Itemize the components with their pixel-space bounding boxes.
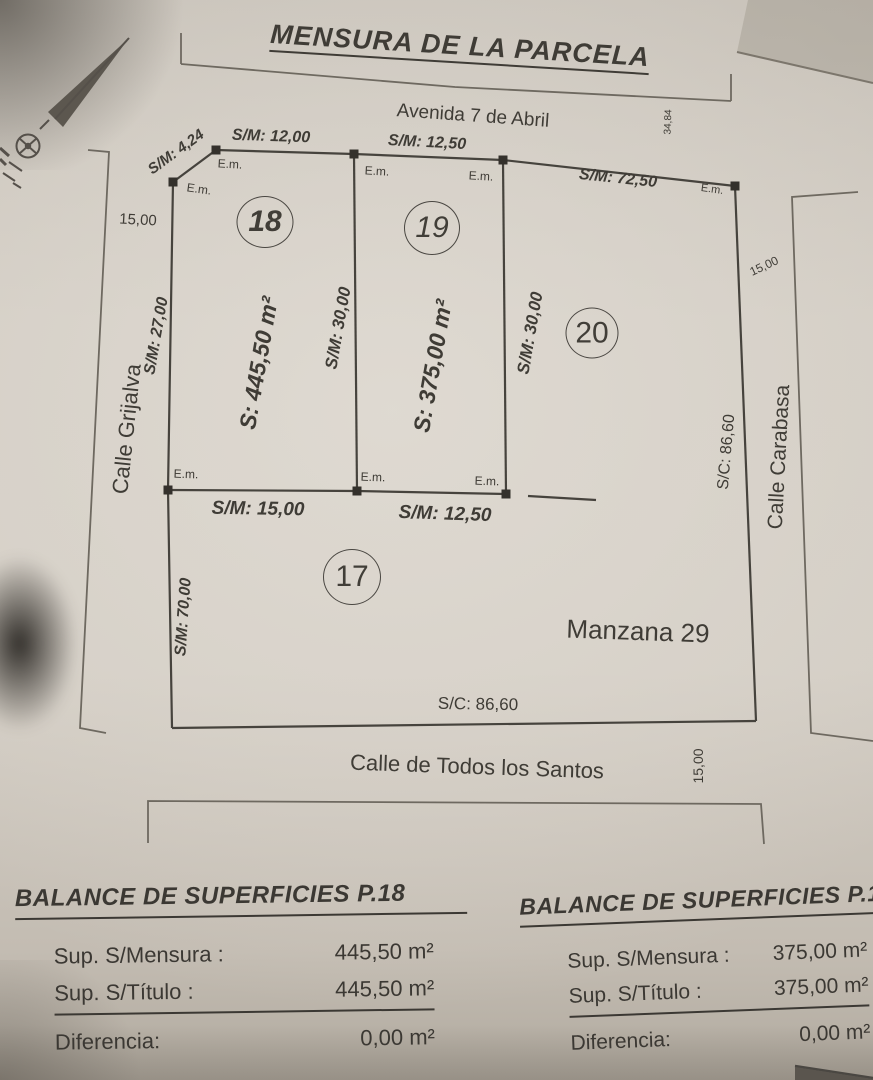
paper-edge-shade — [737, 0, 873, 83]
parcel-number-20: 20 — [575, 316, 608, 350]
row-value: 445,50 m² — [335, 975, 434, 1002]
table-row: Diferencia: 0,00 m² — [570, 1020, 871, 1055]
block-label: Manzana 29 — [566, 616, 710, 647]
em-marker: E.m. — [173, 468, 198, 481]
parcel-circle-20: 20 — [566, 308, 619, 359]
street-width-south: 15,00 — [691, 748, 705, 783]
table-row: Sup. S/Mensura : 445,50 m² — [54, 938, 434, 969]
em-marker: E.m. — [364, 164, 389, 177]
table-row: Diferencia: 0,00 m² — [55, 1024, 435, 1055]
measure-depth-right: 34,84 — [664, 109, 675, 134]
street-width-west: 15,00 — [119, 212, 157, 229]
measure-block-south: S/C: 86,60 — [438, 695, 519, 713]
row-value: 0,00 m² — [360, 1024, 435, 1051]
em-marker: E.m. — [360, 471, 385, 484]
em-marker: E.m. — [474, 475, 499, 488]
row-value: 445,50 m² — [334, 938, 433, 965]
row-label: Diferencia: — [570, 1028, 671, 1056]
measure-back-p18: S/M: 15,00 — [211, 499, 304, 520]
parcel-circle-18: 18 — [237, 196, 294, 248]
em-marker: E.m. — [186, 181, 212, 196]
measure-front-p18: S/M: 12,00 — [232, 128, 311, 147]
parcel-number-19: 19 — [415, 211, 448, 245]
row-value: 375,00 m² — [774, 973, 869, 1001]
row-label: Diferencia: — [55, 1028, 161, 1055]
north-arrow-icon — [0, 38, 129, 188]
balance-table-p19: BALANCE DE SUPERFICIES P.19 Sup. S/Mensu… — [519, 878, 873, 1068]
row-value: 375,00 m² — [772, 938, 867, 966]
row-label: Sup. S/Mensura : — [54, 941, 224, 969]
em-marker: E.m. — [217, 157, 242, 170]
parcel-circle-19: 19 — [404, 201, 460, 255]
balance-table-p18: BALANCE DE SUPERFICIES P.18 Sup. S/Mensu… — [15, 879, 469, 1067]
measure-back-p19: S/M: 12,50 — [398, 503, 492, 525]
table-row: Sup. S/Mensura : 375,00 m² — [567, 938, 868, 973]
street-brackets — [80, 150, 873, 844]
parcel-circle-17: 17 — [323, 549, 381, 605]
parcel-number-17: 17 — [335, 560, 368, 594]
row-label: Sup. S/Título : — [568, 980, 702, 1009]
bottom-crease-shade — [795, 1067, 873, 1080]
balance-table-p18-title: BALANCE DE SUPERFICIES P.18 — [15, 879, 467, 920]
scanned-survey-page: MENSURA DE LA PARCELA Avenida 7 de Abril… — [0, 0, 873, 1080]
table-row: Sup. S/Título : 445,50 m² — [54, 975, 434, 1015]
table-row: Sup. S/Título : 375,00 m² — [568, 973, 869, 1017]
parcel-number-18: 18 — [248, 205, 281, 239]
row-label: Sup. S/Título : — [54, 979, 194, 1007]
row-value: 0,00 m² — [799, 1020, 871, 1047]
em-marker: E.m. — [468, 169, 493, 182]
row-label: Sup. S/Mensura : — [567, 944, 730, 974]
